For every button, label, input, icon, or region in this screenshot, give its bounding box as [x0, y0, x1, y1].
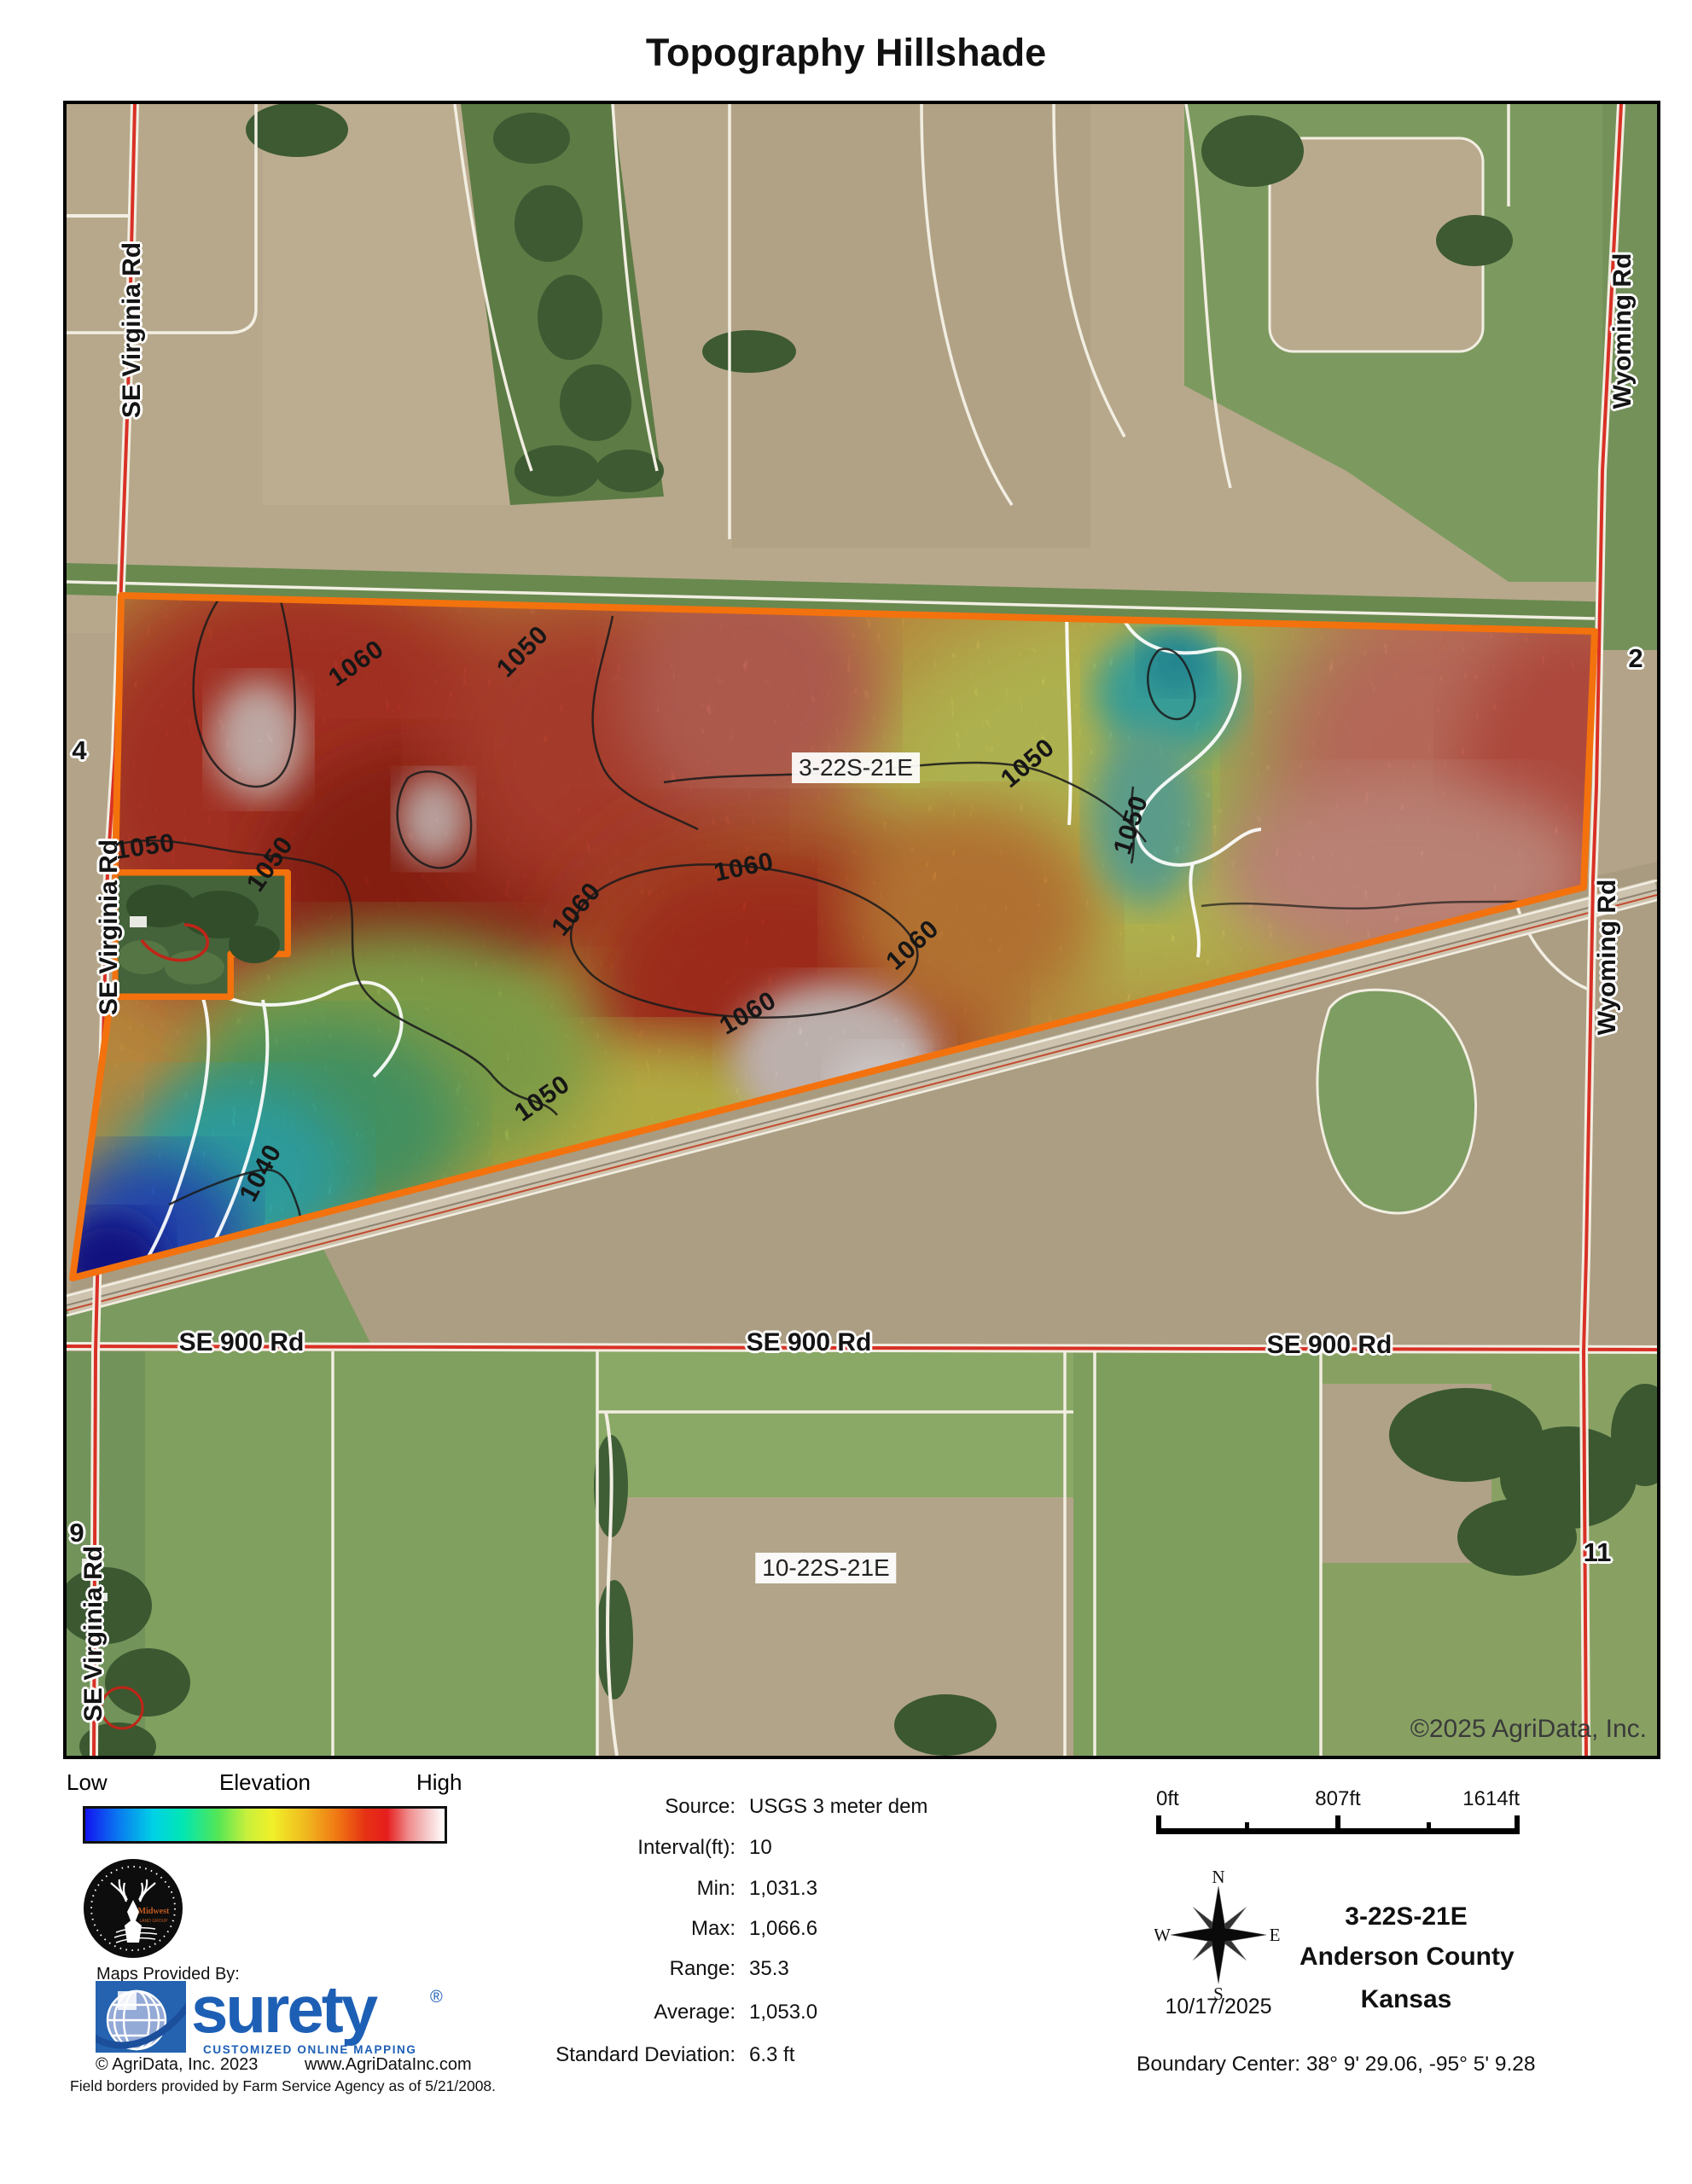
road-label-se900-center: SE 900 Rd — [747, 1328, 872, 1357]
boundary-center: Boundary Center: 38° 9' 29.06, -95° 5' 9… — [1137, 2053, 1529, 2077]
agridata-copyright: © AgriData, Inc. 2023 — [96, 2055, 258, 2075]
stat-label: Min: — [697, 1877, 736, 1901]
road-label-se-virginia-top: SE Virginia Rd — [118, 242, 147, 418]
road-label-wyoming-top: Wyoming Rd — [1608, 253, 1637, 409]
stat-label: Interval(ft): — [637, 1836, 736, 1860]
compass-n: N — [1212, 1869, 1224, 1887]
legend-low-label: Low — [67, 1769, 108, 1796]
compass-rose: N W E S — [1154, 1869, 1282, 2004]
stat-label: Max: — [691, 1917, 736, 1941]
page-title: Topography Hillshade — [0, 31, 1692, 75]
stat-value: 1,053.0 — [749, 2001, 817, 2024]
footer-panel: Low Elevation High Midwest LAND GROUP Ma… — [0, 1756, 1692, 2184]
surety-globe-icon — [96, 1981, 186, 2053]
compass-e: E — [1270, 1925, 1281, 1945]
stat-value: 6.3 ft — [749, 2043, 794, 2067]
section-number-9: 9 — [69, 1518, 84, 1548]
stat-value: 1,066.6 — [749, 1917, 817, 1941]
elevation-gradient-bar — [83, 1806, 447, 1844]
field-borders-disclaimer: Field borders provided by Farm Service A… — [70, 2077, 496, 2095]
svg-text:LAND GROUP: LAND GROUP — [139, 1919, 168, 1924]
stat-label: Source: — [665, 1795, 736, 1819]
location-county: Anderson County — [1300, 1943, 1513, 1972]
road-label-wyoming-mid: Wyoming Rd — [1593, 880, 1622, 1036]
stat-label: Average: — [654, 2001, 736, 2024]
agridata-website: www.AgriDataInc.com — [305, 2055, 472, 2075]
legend-title: Elevation — [219, 1769, 311, 1796]
stat-value: 10 — [749, 1836, 772, 1860]
midwest-land-group-logo: Midwest LAND GROUP — [82, 1857, 184, 1960]
section-number-2: 2 — [1628, 643, 1643, 674]
location-state: Kansas — [1300, 1985, 1513, 2014]
road-label-se900-left: SE 900 Rd — [179, 1328, 305, 1357]
compass-w: W — [1154, 1925, 1171, 1945]
registered-mark: ® — [430, 1988, 443, 2007]
map-copyright: ©2025 AgriData, Inc. — [1410, 1715, 1647, 1744]
aerial-map-graphic — [67, 104, 1657, 1756]
road-label-se-virginia-bottom: SE Virginia Rd — [79, 1546, 108, 1722]
map-canvas: SE Virginia Rd SE Virginia Rd SE Virgini… — [63, 101, 1660, 1759]
scale-end-label: 1614ft — [1462, 1787, 1520, 1811]
legend-high-label: High — [416, 1769, 462, 1796]
surety-tagline: CUSTOMIZED ONLINE MAPPING — [203, 2043, 417, 2056]
trs-label-3-22s-21e: 3-22S-21E — [792, 752, 920, 783]
road-label-se900-right: SE 900 Rd — [1267, 1331, 1393, 1360]
section-number-11: 11 — [1584, 1537, 1612, 1568]
scale-mid-label: 807ft — [1315, 1787, 1360, 1811]
stat-value: USGS 3 meter dem — [749, 1795, 927, 1819]
trs-label-10-22s-21e: 10-22S-21E — [755, 1553, 896, 1583]
road-label-se-virginia-mid: SE Virginia Rd — [95, 839, 124, 1015]
svg-text:Midwest: Midwest — [138, 1907, 170, 1916]
scale-start-label: 0ft — [1156, 1787, 1179, 1811]
stat-value: 1,031.3 — [749, 1877, 817, 1901]
stat-label: Range: — [670, 1957, 736, 1981]
stat-value: 35.3 — [749, 1957, 789, 1981]
page: Topography Hillshade — [0, 0, 1692, 2184]
surety-wordmark: surety — [191, 1976, 375, 2042]
location-trs: 3-22S-21E — [1300, 1902, 1513, 1931]
section-number-4: 4 — [72, 735, 86, 766]
stat-label: Standard Deviation: — [555, 2043, 736, 2067]
map-date: 10/17/2025 — [1154, 1995, 1282, 2019]
